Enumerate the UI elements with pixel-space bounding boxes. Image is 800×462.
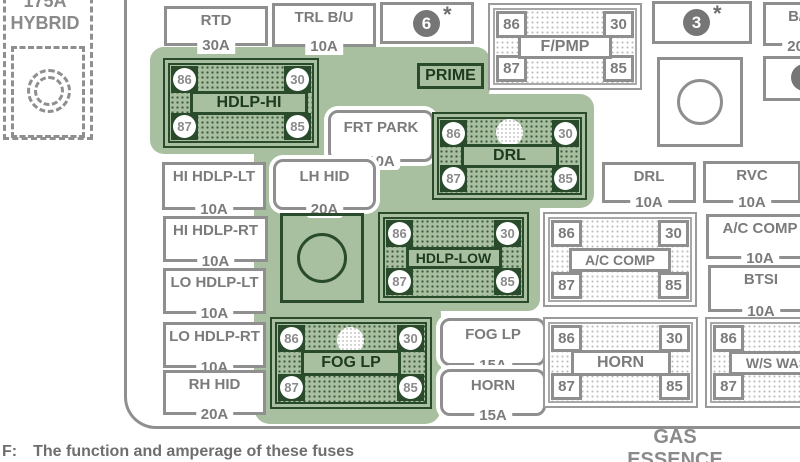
relay-label: A/C COMP [569,248,671,272]
relay-label: F/PMP [518,35,612,59]
fuse-frt-park: FRT PARK 10A [328,110,434,162]
pin-85: 85 [658,272,689,299]
pin-30: 30 [658,220,689,247]
pin-86: 86 [386,220,413,247]
pin-87: 87 [551,272,582,299]
relay-label: DRL [461,144,559,168]
fuse-hi-hdlp-lt: HI HDLP-LT 10A [162,162,266,210]
fuse-label: HORN [443,372,543,394]
fuse-label: HI HDLP-LT [165,165,263,185]
fuse-label: LO HDLP-LT [166,271,263,291]
fuse-label: TRL B/U [275,6,373,26]
footnote: F:The function and amperage of these fus… [2,443,354,461]
pin-85: 85 [603,55,634,82]
hybrid-amp: 175A [3,0,87,12]
fuse-label: LH HID [276,162,373,185]
pin-30: 30 [284,66,311,93]
socket-box-green [280,213,364,303]
relay-label: HDLP-HI [190,91,308,115]
footnote-prefix: F: [2,443,17,460]
pin-30: 30 [659,325,690,352]
fuse-label: A/C COMP [709,217,800,237]
pin-87: 87 [496,55,527,82]
asterisk-icon: * [713,4,722,24]
prime-label-box: PRIME [417,63,484,89]
pin-86: 86 [713,325,744,352]
relay-drl: 86 30 87 85 DRL [432,112,587,200]
relay-f-pmp: 86 30 87 85 F/PMP [488,3,642,90]
circle-badge-partial [791,64,800,91]
relay-fog-lp: 86 30 87 85 FOG LP [270,317,432,409]
fuse-amp: 10A [196,306,234,322]
pin-86: 86 [551,325,582,352]
pin-86: 86 [171,66,198,93]
fuse-rvc: RVC 10A [703,161,800,203]
hybrid-label: HYBRID [3,13,87,34]
fuse-label: DRL [605,165,693,185]
fuse-rh-hid: RH HID 20A [163,370,266,415]
pin-85: 85 [397,374,424,401]
region-label-line1: GAS [605,426,745,449]
asterisk-icon: * [443,5,452,25]
pin-85: 85 [284,113,311,140]
pin-30: 30 [552,120,579,147]
fuse-label: LO HDLP-RT [166,325,263,345]
fuse-amp: 10A [630,195,668,211]
pin-85: 85 [494,268,521,295]
relay-hdlp-hi: 86 30 87 85 HDLP-HI [163,58,319,148]
socket-circle-icon [677,79,723,125]
fuse-label: BTSI [711,268,800,288]
fuse-amp: 20A [782,39,800,55]
pin-87: 87 [386,268,413,295]
fuse-label: FOG LP [443,321,543,343]
fuse-horn: HORN 15A [440,369,546,416]
pin-85: 85 [552,165,579,192]
fuse-ac-comp: A/C COMP 10A [706,214,800,259]
relay-label: W/S WASH [729,351,800,375]
fuse-lo-hdlp-rt: LO HDLP-RT 10A [163,322,266,368]
dashed-inner-circle-icon [34,76,64,106]
fuse-label: B/U [766,5,800,25]
pin-85: 85 [659,373,690,400]
fuse-btsi: BTSI 10A [708,265,800,312]
socket-box [657,57,743,147]
pin-87: 87 [713,373,744,400]
pin-86: 86 [551,220,582,247]
fuse-amp: 20A [196,407,234,423]
fuse-label: RTD [167,9,265,29]
relay-hdlp-low: 86 30 87 85 HDLP-LOW [378,212,529,303]
pin-87: 87 [551,373,582,400]
pin-87: 87 [278,374,305,401]
pin-86: 86 [278,325,305,352]
circle-6-badge: 6 [413,10,440,37]
pin-30: 30 [397,325,424,352]
fuse-rtd: RTD 30A [164,6,268,46]
fuse-amp: 10A [733,195,771,211]
relay-label: HDLP-LOW [406,247,502,269]
relay-horn: 86 30 87 85 HORN [543,317,698,408]
region-label-line2: ESSENCE [605,449,745,462]
fuse-amp: 15A [474,408,512,424]
relay-ws-wash: 86 30 87 85 W/S WASH [705,317,800,408]
pin-87: 87 [171,113,198,140]
relay-label: FOG LP [301,350,401,376]
socket-circle-icon [297,233,347,283]
fuse-trl-bu: TRL B/U 10A [272,3,376,47]
relay-label: HORN [571,350,671,376]
fuse-fog-lp: FOG LP 15A [440,318,546,366]
fuse-lo-hdlp-lt: LO HDLP-LT 10A [163,268,266,314]
fuse-amp: 10A [305,39,343,55]
footnote-text: The function and amperage of these fuses [33,443,354,460]
fuse-amp: 30A [197,38,235,54]
region-label-gas: GAS ESSENCE [605,426,745,462]
pin-30: 30 [494,220,521,247]
fuse-label: RH HID [166,373,263,393]
circle-3-badge: 3 [683,9,710,36]
fuse-box-diagram: 175A HYBRID RTD 30A TRL B/U 10A 6 * 3 * … [0,0,800,462]
relay-dot-icon [496,119,523,146]
relay-position-6-box: 6 * [380,2,474,44]
fuse-drl: DRL 10A [602,162,696,203]
fuse-label: FRT PARK [331,113,431,136]
relay-ac-comp: 86 30 87 85 A/C COMP [543,212,697,307]
relay-position-3-box: 3 * [652,1,752,44]
pin-86: 86 [440,120,467,147]
pin-87: 87 [440,165,467,192]
fuse-label: HI HDLP-RT [166,219,265,239]
relay-position-box-partial [763,56,800,101]
fuse-label: RVC [706,164,798,184]
fuse-lh-hid: LH HID 20A [273,159,376,210]
fuse-bu-partial: B/U 20A [763,2,800,46]
fuse-hi-hdlp-rt: HI HDLP-RT 10A [163,216,268,262]
